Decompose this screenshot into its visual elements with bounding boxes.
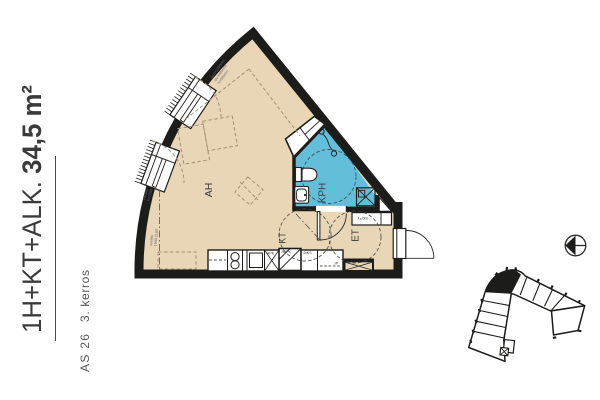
svg-text:APK: APK — [267, 252, 275, 256]
svg-text:1H+KT+ALK. 34,5 m²: 1H+KT+ALK. 34,5 m² — [17, 85, 47, 333]
svg-text:AS 26: AS 26 — [78, 334, 92, 372]
svg-text:KPH: KPH — [318, 183, 329, 204]
svg-text:JK/PK: JK/PK — [281, 250, 292, 254]
svg-text:4xKS: 4xKS — [303, 251, 312, 255]
svg-text:SKPY: SKPY — [357, 216, 368, 221]
svg-text:KT: KT — [278, 232, 288, 244]
svg-text:ET: ET — [351, 229, 362, 242]
svg-text:AH: AH — [203, 183, 215, 198]
svg-text:3. kerros: 3. kerros — [78, 270, 92, 322]
